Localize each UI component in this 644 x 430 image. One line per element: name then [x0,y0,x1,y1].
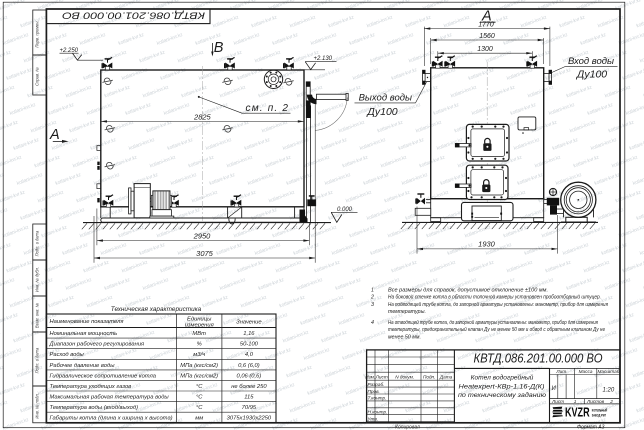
svg-text:Техническая характеристика: Техническая характеристика [111,306,202,313]
svg-text:Значение: Значение [236,320,262,326]
svg-text:Выход воды: Выход воды [359,93,412,104]
svg-text:Инв. № подл.: Инв. № подл. [35,393,40,418]
svg-text:1930: 1930 [478,240,496,249]
svg-text:Лит.: Лит. [555,369,567,374]
svg-text:МПа (кгс/см2): МПа (кгс/см2) [180,373,218,379]
svg-text:Перв. примен.: Перв. примен. [35,20,40,47]
svg-text:Формат А3: Формат А3 [577,424,605,430]
svg-text:КОТЕЛЬНЫЙ: КОТЕЛЬНЫЙ [592,408,608,412]
svg-text:Гидравлическое сопротивление к: Гидравлическое сопротивление котла [50,373,157,379]
svg-text:Утв.: Утв. [368,416,379,421]
svg-text:Изм.: Изм. [365,375,375,380]
svg-text:Лист: Лист [375,375,388,380]
svg-text:Все размеры для справок, допус: Все размеры для справок, допустимое откл… [388,287,548,293]
svg-text:Вход воды: Вход воды [568,56,614,67]
svg-text:%: % [197,342,202,348]
svg-text:На боковой стенке котла в обла: На боковой стенке котла в области топочн… [388,294,601,301]
svg-text:Н.контр.: Н.контр. [368,410,388,415]
svg-text:м3/ч: м3/ч [193,352,205,358]
svg-text:Масштаб: Масштаб [597,369,619,374]
svg-text:Heatexpert-КВр-1,16-Д(К): Heatexpert-КВр-1,16-Д(К) [459,383,545,390]
svg-text:Листов: Листов [586,399,605,404]
svg-text:1: 1 [371,287,374,293]
svg-text:ЗАВОД РЭП: ЗАВОД РЭП [592,414,606,418]
svg-text:по техническому заданию: по техническому заданию [458,391,546,399]
svg-text:1560: 1560 [479,33,495,40]
svg-text:°С: °С [196,405,203,411]
svg-text:КВТД.086.201.00.000 ВО: КВТД.086.201.00.000 ВО [474,352,603,366]
svg-text:2825: 2825 [193,112,212,121]
svg-text:Инв. № дубл.: Инв. № дубл. [35,267,40,292]
svg-text:На отводящей трубе котла, до з: На отводящей трубе котла, до запорной ар… [388,319,598,326]
svg-text:4,0: 4,0 [245,352,254,358]
svg-text:Справ. №: Справ. № [35,67,40,86]
svg-text:мм: мм [195,416,203,422]
svg-text:Температура уходящих газов: Температура уходящих газов [50,384,132,390]
svg-text:°С: °С [196,384,203,390]
svg-text:МПа (кгс/см2): МПа (кгс/см2) [180,363,218,369]
svg-text:3: 3 [371,302,374,308]
svg-text:А: А [49,127,60,143]
svg-text:менее 50 мм.: менее 50 мм. [388,335,421,341]
svg-text:KVZR: KVZR [565,405,590,420]
svg-text:температуры, предохранительный: температуры, предохранительный клапан Ду… [388,326,605,333]
svg-text:+2.130: +2.130 [314,56,333,62]
svg-text:Габариты котла (длина х ширина: Габариты котла (длина х ширина х высота) [50,416,173,422]
svg-text:Подп. и дата: Подп. и дата [35,230,40,256]
svg-text:0,06 (0,6): 0,06 (0,6) [236,373,261,379]
svg-text:На подводящей трубе котла, д: На подводящей трубе котла, до запорной а… [388,301,608,308]
svg-text:Расход воды: Расход воды [50,352,85,358]
svg-text:N докум.: N докум. [395,375,414,380]
svg-text:+2.250: +2.250 [60,48,79,54]
svg-text:°С: °С [196,395,203,401]
svg-text:Взам. инв. №: Взам. инв. № [35,302,40,328]
svg-text:Копировал: Копировал [395,424,420,430]
svg-text:1,16: 1,16 [243,331,255,337]
svg-text:3075: 3075 [196,249,214,258]
svg-text:70/95: 70/95 [242,405,257,411]
svg-text:Рабочее давление воды: Рабочее давление воды [50,363,116,369]
svg-text:Ду100: Ду100 [366,106,397,118]
svg-text:не более 250: не более 250 [231,384,267,390]
svg-text:1300: 1300 [477,46,493,53]
svg-text:Наименование показателя: Наименование показателя [50,319,124,325]
svg-text:Лист: Лист [551,399,564,404]
svg-text:Дата: Дата [439,375,453,380]
svg-text:Пров.: Пров. [368,389,380,394]
svg-text:2: 2 [370,295,374,301]
svg-text:И: И [551,386,556,392]
svg-text:0,6 (6,0): 0,6 (6,0) [238,363,260,369]
svg-text:Температура воды (вход/выход): Температура воды (вход/выход) [50,405,139,411]
svg-text:КВТД.086.201.00.000 ВО: КВТД.086.201.00.000 ВО [61,10,205,21]
svg-text:2: 2 [609,399,613,404]
svg-text:измерения: измерения [185,323,214,329]
svg-text:50-100: 50-100 [240,342,259,348]
svg-text:Диапазон рабочего регулировани: Диапазон рабочего регулирования [49,342,145,348]
svg-text:1: 1 [574,399,577,404]
svg-text:Котел водогрейный: Котел водогрейный [471,374,534,382]
svg-text:Максимальная рабочая температу: Максимальная рабочая температура воды [50,395,170,401]
svg-text:Ду100: Ду100 [576,69,607,81]
svg-text:Подп.: Подп. [423,375,435,380]
svg-text:4: 4 [371,320,374,326]
svg-text:температуры.: температуры. [388,309,426,315]
svg-text:0.000: 0.000 [337,207,353,213]
svg-text:Т.контр.: Т.контр. [368,396,387,401]
svg-text:В: В [214,40,224,56]
svg-text:Разраб.: Разраб. [368,382,385,387]
svg-text:Номинальная мощность: Номинальная мощность [50,331,118,337]
svg-text:2950: 2950 [193,231,212,240]
svg-text:МВт: МВт [192,331,206,337]
svg-text:Единицы: Единицы [187,316,212,322]
svg-text:Подп. и дата: Подп. и дата [35,347,40,373]
svg-text:1:20: 1:20 [603,388,615,394]
svg-text:Масса: Масса [579,369,593,374]
svg-text:115: 115 [244,395,254,401]
svg-text:см. п. 2: см. п. 2 [246,103,290,114]
svg-text:3075х1930х2250: 3075х1930х2250 [227,416,272,422]
